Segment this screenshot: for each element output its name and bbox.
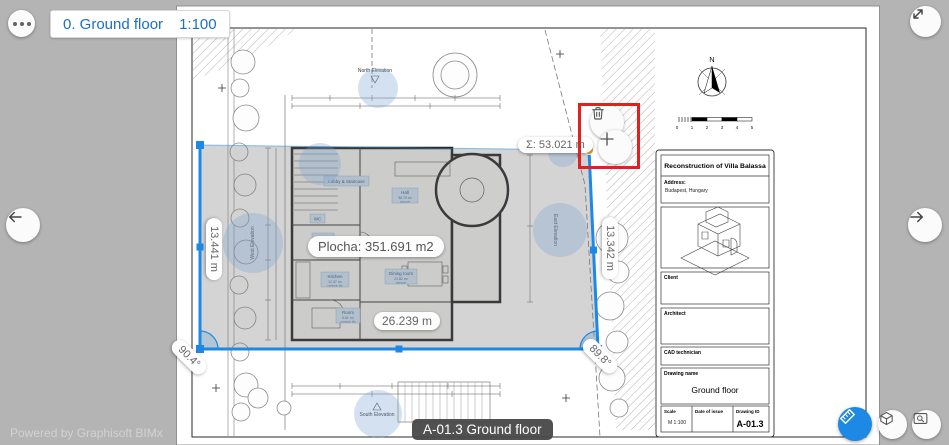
drawing-id-label: Drawing ID — [736, 409, 760, 414]
vertex-handle-topleft — [196, 141, 204, 149]
project-title: Reconstruction of Villa Balassa — [664, 163, 766, 170]
edge-handle-left — [197, 244, 204, 251]
svg-text:N: N — [709, 55, 714, 64]
address-label: Address: — [664, 180, 686, 186]
zoom-rectangle-icon — [912, 410, 929, 427]
floor-name: 0. Ground floor — [63, 16, 163, 33]
client-label: Client — [664, 275, 678, 281]
hotspot-south — [354, 390, 402, 438]
edge-handle-bottom — [396, 346, 403, 353]
more-options-button[interactable] — [8, 10, 35, 37]
architect-label: Architect — [664, 311, 686, 317]
bimx-viewer: North Elevation South Elevation West Ele… — [0, 0, 949, 445]
arrow-right-icon — [908, 208, 926, 226]
dimension-label-right: 13.342 m — [602, 217, 618, 279]
title-block: Reconstruction of Villa Balassa Address:… — [656, 150, 774, 437]
drawing-name-label: Drawing name — [664, 371, 698, 377]
ellipsis-icon — [13, 22, 31, 26]
fullscreen-button[interactable] — [910, 6, 941, 37]
drawing-name-value: Ground floor — [691, 385, 738, 395]
hotspot-east — [533, 203, 587, 257]
expand-icon — [910, 6, 926, 22]
scale-label: Scale — [664, 409, 676, 414]
area-tooltip: Plocha: 351.691 m2 — [308, 236, 444, 257]
edge-handle-right — [590, 247, 597, 254]
drawing-canvas: North Elevation South Elevation West Ele… — [0, 0, 949, 445]
measure-tool-button[interactable] — [838, 407, 872, 441]
hotspot-north — [358, 68, 398, 108]
vertex-handle-bottomleft — [196, 345, 204, 353]
floor-scale: 1:100 — [179, 16, 217, 33]
hotspot-lobby — [299, 143, 341, 185]
sheet-name-tooltip: A-01.3 Ground floor — [412, 419, 553, 440]
dimension-label-left: 13.441 m — [206, 218, 222, 280]
next-sheet-button[interactable] — [908, 208, 942, 242]
model-3d-button[interactable] — [878, 410, 907, 439]
dimension-label-bottom: 26.239 m — [374, 312, 440, 330]
cad-label: CAD technician — [664, 350, 701, 356]
scale-value: M 1:100 — [668, 420, 686, 426]
date-label: Date of issue — [695, 409, 724, 414]
powered-by-label: Powered by Graphisoft BIMx — [10, 426, 163, 440]
floor-selector[interactable]: 0. Ground floor 1:100 — [50, 10, 230, 38]
zoom-window-button[interactable] — [912, 410, 941, 439]
ruler-icon — [838, 407, 857, 426]
house-3d-icon — [878, 410, 895, 427]
highlight-rectangle — [578, 103, 640, 169]
drawing-id-value: A-01.3 — [736, 419, 763, 429]
hotspot-west — [223, 213, 283, 273]
previous-sheet-button[interactable] — [6, 208, 40, 242]
arrow-left-icon — [6, 208, 24, 226]
address-value: Budapest, Hungary — [665, 188, 708, 194]
